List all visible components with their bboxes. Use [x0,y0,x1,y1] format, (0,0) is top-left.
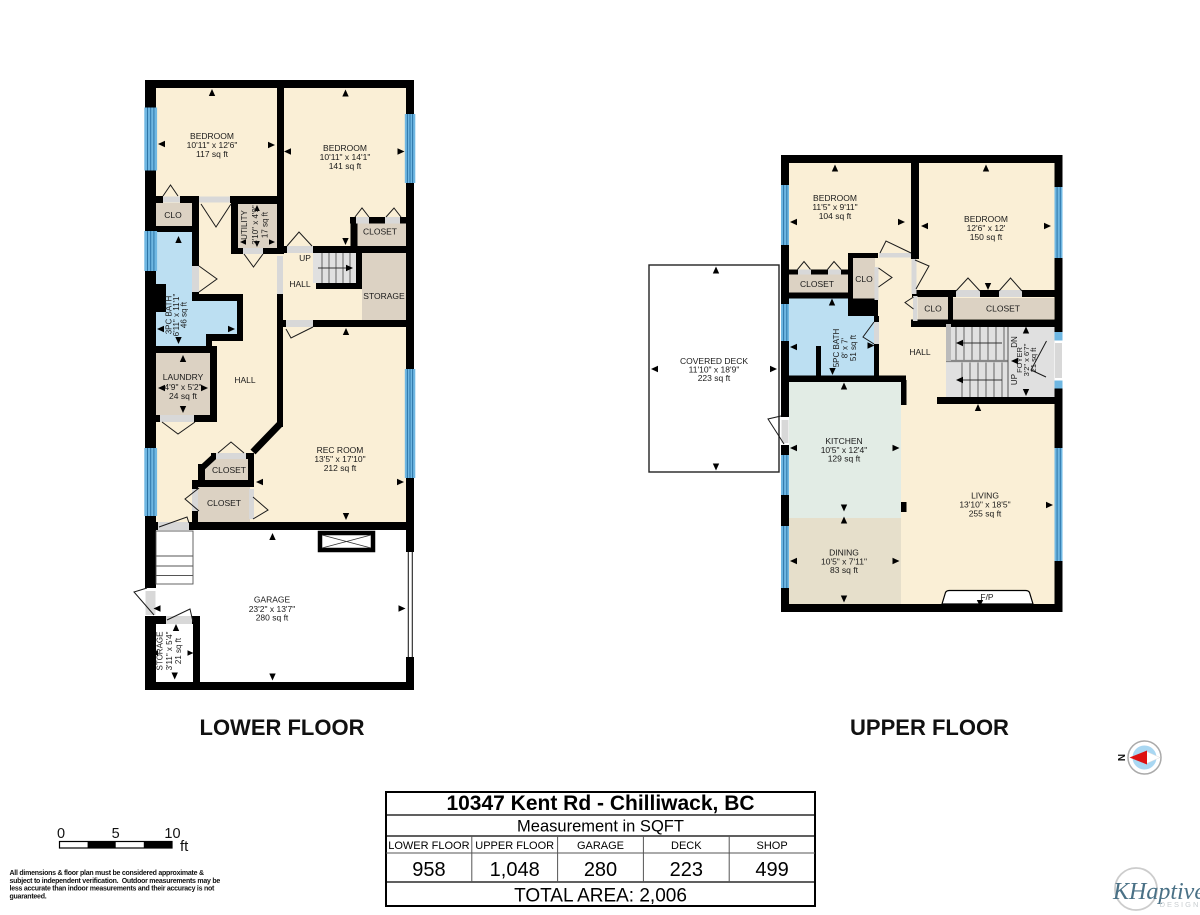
svg-text:21 sq ft: 21 sq ft [174,637,183,664]
svg-text:255 sq ft: 255 sq ft [969,509,1002,519]
svg-text:3'10" x 4'9": 3'10" x 4'9" [251,205,260,245]
svg-text:CLOSET: CLOSET [212,465,246,475]
svg-text:less accurate than indoor meas: less accurate than indoor measurements a… [10,886,215,893]
svg-text:24 sq ft: 24 sq ft [169,391,198,401]
svg-text:223 sq ft: 223 sq ft [698,373,731,383]
svg-text:21 sq ft: 21 sq ft [1029,347,1038,373]
svg-text:GARAGE: GARAGE [577,840,624,852]
svg-text:280: 280 [584,859,617,881]
svg-text:CLOSET: CLOSET [986,304,1020,314]
svg-text:CLO: CLO [855,274,873,284]
svg-text:129 sq ft: 129 sq ft [828,454,861,464]
svg-text:46 sq ft: 46 sq ft [180,301,189,328]
svg-text:STORAGE: STORAGE [363,291,405,301]
svg-text:STORAGE: STORAGE [156,632,165,671]
svg-text:CLO: CLO [164,210,182,220]
svg-text:223: 223 [670,859,703,881]
svg-text:499: 499 [755,859,788,881]
svg-text:150 sq ft: 150 sq ft [970,232,1003,242]
svg-text:HALL: HALL [289,279,311,289]
svg-text:1,048: 1,048 [490,859,540,881]
svg-text:GARAGE: GARAGE [254,595,291,605]
svg-text:104 sq ft: 104 sq ft [819,211,852,221]
svg-text:N: N [1117,754,1128,761]
svg-text:UPPER FLOOR: UPPER FLOOR [850,715,1009,740]
svg-text:TOTAL AREA: 2,006: TOTAL AREA: 2,006 [514,886,687,907]
svg-text:83 sq ft: 83 sq ft [830,565,859,575]
svg-text:212 sq ft: 212 sq ft [324,463,357,473]
svg-text:CLOSET: CLOSET [800,279,834,289]
svg-text:LAUNDRY: LAUNDRY [163,372,204,382]
svg-text:117 sq ft: 117 sq ft [196,149,229,159]
svg-text:guaranteed.: guaranteed. [10,893,47,900]
svg-text:HALL: HALL [234,375,256,385]
svg-text:10: 10 [164,826,180,842]
svg-text:UP: UP [299,253,311,263]
svg-text:DESIGN: DESIGN [1160,900,1200,909]
svg-text:ft: ft [180,838,189,855]
svg-text:141 sq ft: 141 sq ft [329,161,362,171]
svg-text:17 sq ft: 17 sq ft [261,211,270,238]
svg-text:280 sq ft: 280 sq ft [256,613,289,623]
svg-text:Measurement in SQFT: Measurement in SQFT [517,818,684,836]
svg-text:51 sq ft: 51 sq ft [849,334,858,361]
svg-text:5: 5 [112,826,120,842]
svg-text:UTILITY: UTILITY [240,209,249,239]
svg-text:subject to independent verific: subject to independent verification. Out… [10,878,221,885]
svg-text:DECK: DECK [671,840,702,852]
svg-text:LOWER FLOOR: LOWER FLOOR [200,715,365,740]
svg-text:UPPER FLOOR: UPPER FLOOR [475,840,554,852]
svg-text:CLOSET: CLOSET [207,498,241,508]
svg-text:958: 958 [412,859,445,881]
svg-text:CLOSET: CLOSET [363,227,397,237]
svg-text:0: 0 [57,826,65,842]
svg-text:All dimensions & floor plan mu: All dimensions & floor plan must be cons… [10,870,204,877]
svg-text:CLO: CLO [924,304,942,314]
svg-text:3'11" x 5'4": 3'11" x 5'4" [165,631,174,670]
svg-text:DN: DN [1010,336,1019,348]
svg-text:UP: UP [1010,374,1019,385]
svg-text:HALL: HALL [909,347,931,357]
svg-text:SHOP: SHOP [757,840,788,852]
svg-text:10347 Kent Rd - Chilliwack, BC: 10347 Kent Rd - Chilliwack, BC [446,792,754,815]
svg-text:F/P: F/P [980,592,994,602]
svg-text:LOWER FLOOR: LOWER FLOOR [388,840,469,852]
